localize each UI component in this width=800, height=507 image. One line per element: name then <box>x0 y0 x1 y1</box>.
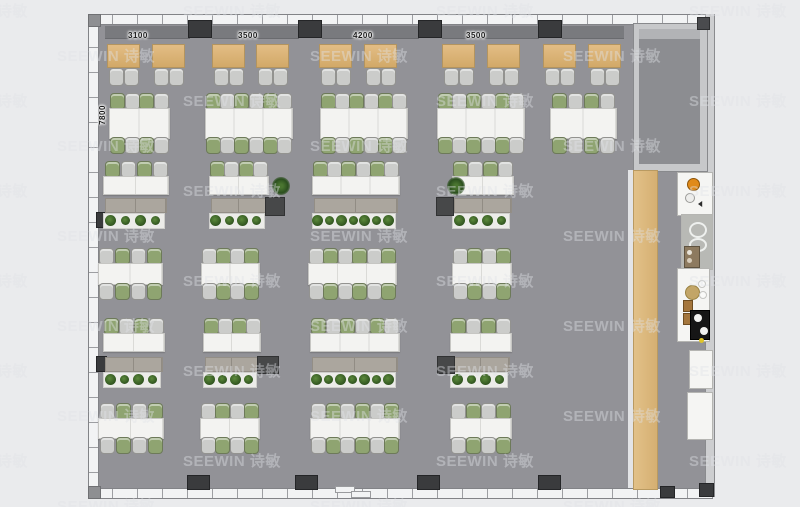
desk <box>550 108 617 139</box>
plant <box>454 215 465 226</box>
plant <box>244 375 253 384</box>
task-chair <box>139 137 154 154</box>
booth-chair <box>444 68 459 86</box>
soft-bench <box>452 357 510 372</box>
booth-table <box>442 44 475 68</box>
plant <box>372 216 381 225</box>
task-chair <box>482 283 497 300</box>
column <box>417 475 440 490</box>
task-chair <box>452 137 467 154</box>
counter-fixture <box>689 350 713 389</box>
column <box>699 483 714 497</box>
plant <box>312 215 323 226</box>
plant <box>497 216 506 225</box>
plant <box>359 374 370 385</box>
plant <box>372 375 381 384</box>
task-chair <box>367 283 382 300</box>
task-chair <box>355 437 370 454</box>
booth-chair <box>169 68 184 86</box>
desk <box>308 263 397 285</box>
column <box>538 475 561 490</box>
column <box>418 20 442 38</box>
task-chair <box>309 283 324 300</box>
task-chair <box>467 283 482 300</box>
dial-icon <box>685 193 695 203</box>
column <box>298 20 322 38</box>
side-table <box>265 197 285 216</box>
task-chair <box>206 137 221 154</box>
booth-chair <box>489 68 504 86</box>
task-chair <box>451 437 466 454</box>
column <box>188 20 212 38</box>
task-chair <box>466 437 481 454</box>
watermark-text: SEEWIN 诗敏 <box>0 360 28 381</box>
plate-icon <box>698 280 706 288</box>
task-chair <box>496 437 511 454</box>
booth-chair <box>366 68 381 86</box>
plant <box>311 374 322 385</box>
task-chair <box>495 137 510 154</box>
task-chair <box>147 283 162 300</box>
cup-icon <box>687 250 692 255</box>
desk <box>201 263 260 285</box>
booth-chair <box>229 68 244 86</box>
desk <box>98 263 163 285</box>
plant <box>121 216 130 225</box>
watermark-text: SEEWIN 诗敏 <box>0 90 28 111</box>
booth-chair <box>545 68 560 86</box>
plant <box>325 216 334 225</box>
soft-bench <box>105 198 167 213</box>
dimension-label-top: 4200 <box>353 31 373 40</box>
soft-bench <box>105 357 163 372</box>
task-chair <box>600 137 615 154</box>
watermark-text: SEEWIN 诗敏 <box>0 450 28 471</box>
plate-icon <box>699 291 707 299</box>
desk <box>310 418 400 439</box>
plant <box>218 375 227 384</box>
floor-plan-canvas: 7800 3100350042003500 SEEWIN 诗敏SEEWIN 诗敏… <box>0 0 800 507</box>
task-chair <box>277 137 292 154</box>
dimension-label-top: 3500 <box>466 31 486 40</box>
booth-table <box>256 44 289 68</box>
task-chair <box>244 437 259 454</box>
task-chair <box>201 437 216 454</box>
task-chair <box>370 437 385 454</box>
knob-icon <box>694 314 702 322</box>
task-chair <box>381 283 396 300</box>
plant <box>204 374 215 385</box>
cup-icon <box>687 258 692 263</box>
task-chair <box>99 283 114 300</box>
desk <box>452 263 512 285</box>
watermark-text: SEEWIN 诗敏 <box>0 0 28 21</box>
task-chair <box>509 137 524 154</box>
task-chair <box>496 283 511 300</box>
task-chair <box>466 137 481 154</box>
task-chair <box>230 437 245 454</box>
task-chair <box>110 137 125 154</box>
desk <box>103 333 165 352</box>
plant <box>105 215 116 226</box>
knob-icon <box>700 327 708 335</box>
task-chair <box>216 283 231 300</box>
desk <box>205 108 293 139</box>
plant <box>135 215 146 226</box>
plant <box>225 216 234 225</box>
soft-bench <box>454 198 512 213</box>
task-chair <box>352 283 367 300</box>
floor-plant <box>272 177 290 195</box>
desk <box>450 418 512 439</box>
corner-column-top-right <box>697 17 710 30</box>
task-chair <box>384 437 399 454</box>
dimension-label-left: 7800 <box>90 103 114 127</box>
desk <box>437 108 525 139</box>
plant <box>469 216 478 225</box>
task-chair <box>234 137 249 154</box>
task-chair <box>378 137 393 154</box>
task-chair <box>116 437 131 454</box>
corner-column-bottom-left <box>88 486 101 499</box>
booth-chair <box>258 68 273 86</box>
task-chair <box>249 137 264 154</box>
booth-chair <box>336 68 351 86</box>
task-chair <box>311 437 326 454</box>
task-chair <box>154 137 169 154</box>
desk <box>203 333 261 352</box>
booth-table <box>588 44 621 68</box>
task-chair <box>148 437 163 454</box>
booth-chair <box>504 68 519 86</box>
plant <box>105 374 116 385</box>
task-chair <box>230 283 245 300</box>
watermark-text: SEEWIN 诗敏 <box>0 180 28 201</box>
task-chair <box>131 283 146 300</box>
booth-chair <box>590 68 605 86</box>
basin-icon <box>689 222 707 238</box>
wall-bottom <box>88 488 713 499</box>
booth-chair <box>214 68 229 86</box>
booth-chair <box>321 68 336 86</box>
task-chair <box>220 137 235 154</box>
column <box>538 20 562 38</box>
soft-bench <box>211 198 267 213</box>
desk <box>450 333 512 352</box>
dimension-label-top: 3500 <box>238 31 258 40</box>
task-chair <box>321 137 336 154</box>
task-chair <box>584 137 599 154</box>
task-chair <box>453 283 468 300</box>
tray-icon <box>685 285 700 300</box>
coffee-machine <box>684 246 700 268</box>
plant <box>495 375 504 384</box>
task-chair <box>100 437 115 454</box>
plant <box>210 215 221 226</box>
wood-platform <box>633 170 658 490</box>
task-chair <box>392 137 407 154</box>
column <box>660 486 675 498</box>
booth-table <box>319 44 352 68</box>
floor-plant <box>447 177 465 195</box>
plant <box>348 375 357 384</box>
booth-table <box>543 44 576 68</box>
side-table <box>437 356 455 374</box>
desk <box>103 176 169 195</box>
plant <box>335 374 346 385</box>
task-chair <box>481 437 496 454</box>
task-chair <box>349 137 364 154</box>
task-chair <box>326 437 341 454</box>
task-chair <box>244 283 259 300</box>
plant <box>336 215 347 226</box>
plant <box>151 216 160 225</box>
booth-table <box>364 44 397 68</box>
desk <box>312 176 400 195</box>
booth-chair <box>273 68 288 86</box>
soft-bench <box>205 357 259 372</box>
plant <box>480 374 491 385</box>
task-chair <box>568 137 583 154</box>
booth-table <box>212 44 245 68</box>
dimension-label-top: 3100 <box>128 31 148 40</box>
task-chair <box>338 283 353 300</box>
desk <box>109 108 170 139</box>
booth-chair <box>459 68 474 86</box>
task-chair <box>263 137 278 154</box>
plant <box>148 375 157 384</box>
booth-chair <box>381 68 396 86</box>
task-chair <box>364 137 379 154</box>
indicator-dot <box>699 338 704 343</box>
plant <box>237 215 248 226</box>
soft-bench <box>312 357 398 372</box>
corner-column-top-left <box>88 14 101 27</box>
plant <box>252 216 261 225</box>
task-chair <box>335 137 350 154</box>
desk <box>310 333 400 352</box>
plant <box>230 374 241 385</box>
desk <box>98 418 164 439</box>
desk <box>320 108 408 139</box>
booth-chair <box>124 68 139 86</box>
meeting-room-floor <box>639 29 700 164</box>
plant <box>324 375 333 384</box>
booth-chair <box>605 68 620 86</box>
meeting-room-window-band <box>639 29 700 39</box>
plant <box>383 374 394 385</box>
booth-chair <box>109 68 124 86</box>
booth-chair <box>154 68 169 86</box>
soft-bench <box>314 198 398 213</box>
task-chair <box>552 137 567 154</box>
task-chair <box>323 283 338 300</box>
plant <box>133 374 144 385</box>
plant <box>120 375 129 384</box>
side-table <box>257 356 279 374</box>
counter-fixture <box>687 392 713 440</box>
task-chair <box>115 283 130 300</box>
plant <box>349 216 358 225</box>
booth-table <box>152 44 185 68</box>
task-chair <box>125 137 140 154</box>
plant <box>467 375 476 384</box>
burner-icon <box>687 178 700 191</box>
side-table <box>436 197 454 216</box>
task-chair <box>215 437 230 454</box>
column <box>187 475 210 490</box>
task-chair <box>340 437 355 454</box>
wall-top <box>88 14 713 25</box>
sliding-door <box>351 491 371 498</box>
task-chair <box>438 137 453 154</box>
column <box>295 475 318 490</box>
desk <box>200 418 260 439</box>
plant <box>452 374 463 385</box>
watermark-text: SEEWIN 诗敏 <box>0 270 28 291</box>
booth-chair <box>560 68 575 86</box>
booth-table <box>487 44 520 68</box>
task-chair <box>132 437 147 454</box>
banquette-bench <box>442 26 539 39</box>
plant <box>383 215 394 226</box>
task-chair <box>202 283 217 300</box>
banquette-bench <box>562 26 624 39</box>
desk <box>209 176 269 195</box>
plant <box>482 215 493 226</box>
plant <box>359 215 370 226</box>
task-chair <box>481 137 496 154</box>
booth-table <box>107 44 140 68</box>
